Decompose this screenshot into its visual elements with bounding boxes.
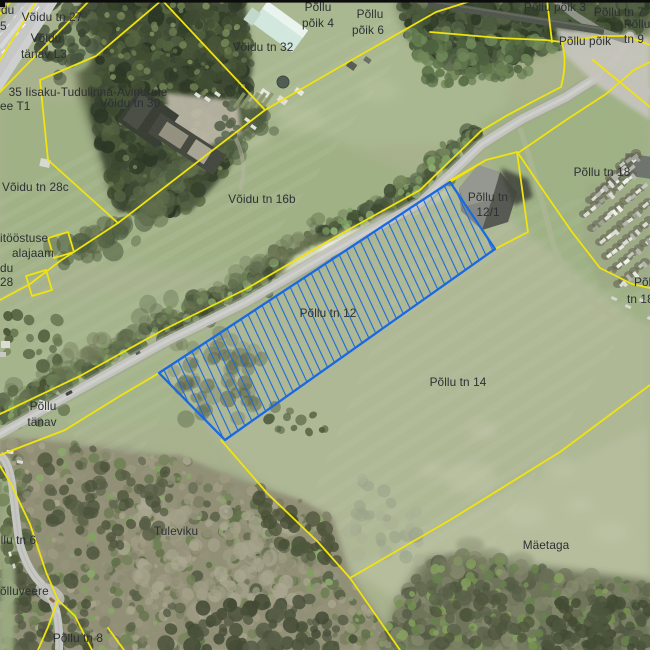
- svg-text:Võidu tn 16b: Võidu tn 16b: [228, 192, 296, 206]
- svg-text:Võidu tn 27: Võidu tn 27: [22, 10, 83, 24]
- svg-text:12/1: 12/1: [476, 205, 499, 219]
- svg-text:alajaam: alajaam: [12, 246, 54, 260]
- svg-text:põik 4: põik 4: [302, 16, 334, 30]
- svg-text:28: 28: [0, 275, 14, 289]
- svg-text:Põllu tn 12: Põllu tn 12: [300, 306, 357, 320]
- svg-text:itööstuse: itööstuse: [0, 231, 48, 245]
- svg-text:Põllu: Põllu: [624, 17, 650, 31]
- svg-text:tänav L3: tänav L3: [21, 47, 67, 61]
- svg-text:tn 9: tn 9: [624, 32, 644, 46]
- svg-text:põik 6: põik 6: [352, 23, 384, 37]
- svg-text:Põllu: Põllu: [634, 275, 650, 289]
- svg-text:Põllu tn 8: Põllu tn 8: [53, 631, 104, 645]
- svg-text:Põllu tn 14: Põllu tn 14: [430, 375, 487, 389]
- svg-text:5: 5: [0, 19, 7, 33]
- svg-text:Tuleviku: Tuleviku: [154, 524, 198, 538]
- svg-text:Põllu tn 18: Põllu tn 18: [574, 165, 631, 179]
- svg-text:Põllu tn 6: Põllu tn 6: [0, 533, 37, 547]
- svg-text:Võidu tn 30: Võidu tn 30: [100, 96, 161, 110]
- svg-text:Põlluveere: Põlluveere: [0, 584, 49, 598]
- svg-text:Põllu: Põllu: [357, 7, 384, 21]
- svg-text:du: du: [0, 261, 13, 275]
- svg-text:tänav: tänav: [27, 415, 56, 429]
- svg-text:Põllu põik: Põllu põik: [559, 34, 611, 48]
- svg-text:Võidu tn 32: Võidu tn 32: [233, 40, 294, 54]
- svg-text:Põllu: Põllu: [30, 399, 57, 413]
- svg-text:ee T1: ee T1: [0, 99, 30, 113]
- svg-text:Võidu tn 28c: Võidu tn 28c: [2, 180, 69, 194]
- svg-text:tn 18: tn 18: [627, 292, 650, 306]
- svg-text:Mäetaga: Mäetaga: [523, 538, 570, 552]
- svg-text:Põllu tn: Põllu tn: [468, 190, 508, 204]
- svg-text:Võidu: Võidu: [31, 31, 62, 45]
